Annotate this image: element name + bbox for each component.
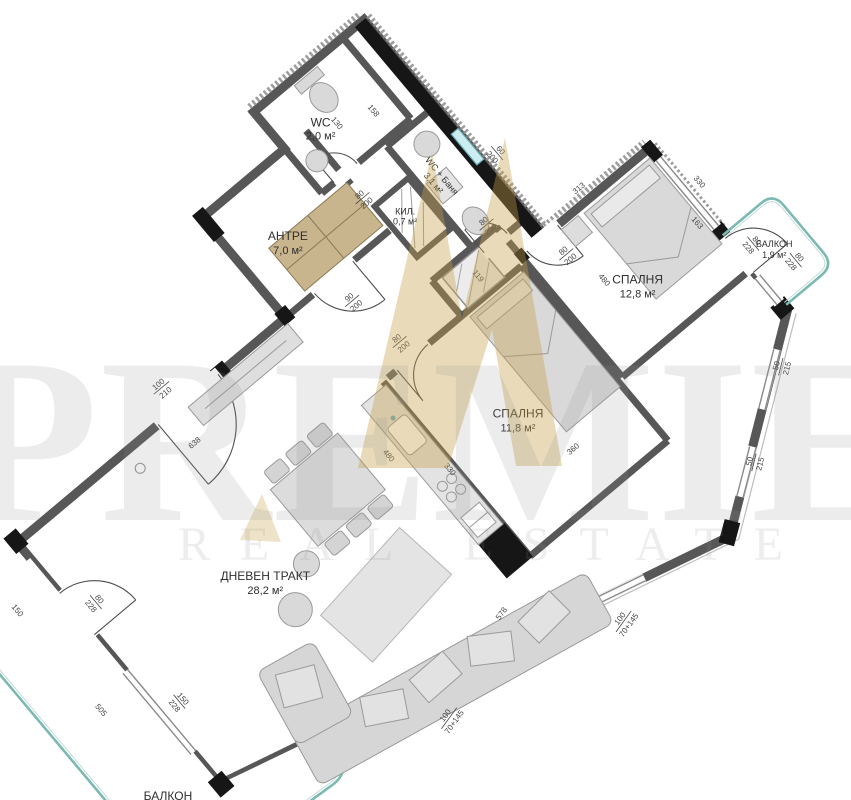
room-label-kil: КИЛ. 0,7 м² xyxy=(393,207,417,227)
watermark-tagline-text: REAL ESTATE xyxy=(178,518,813,571)
svg-text:БАЛКОН: БАЛКОН xyxy=(144,789,193,800)
svg-text:1,9 м²: 1,9 м² xyxy=(762,250,786,260)
room-label-bedroom1: СПАЛНЯ 12,8 м² xyxy=(612,272,663,300)
dim-100-70145-a: 100 70+145 xyxy=(608,605,640,639)
floorplan-svg: WC 2,0 м² КИЛ. 0,7 м² WC + Баня 3,1 м² А… xyxy=(0,0,851,800)
svg-text:28,2 м²: 28,2 м² xyxy=(247,585,283,597)
svg-text:КИЛ.: КИЛ. xyxy=(395,207,415,217)
floorplan-canvas: WC 2,0 м² КИЛ. 0,7 м² WC + Баня 3,1 м² А… xyxy=(0,0,851,800)
watermark: PREMIER REAL ESTATE xyxy=(0,138,851,572)
svg-text:WC: WC xyxy=(311,115,331,129)
svg-text:АНТРЕ: АНТРЕ xyxy=(268,229,308,243)
svg-text:12,8 м²: 12,8 м² xyxy=(620,288,656,300)
dim-330-window: 330 xyxy=(692,174,708,190)
svg-text:СПАЛНЯ: СПАЛНЯ xyxy=(612,272,663,286)
svg-text:7,0 м²: 7,0 м² xyxy=(273,245,303,257)
svg-text:0,7 м²: 0,7 м² xyxy=(393,217,417,227)
svg-text:2,0 м²: 2,0 м² xyxy=(306,130,336,142)
room-label-balcony2: БАЛКОН 6,7 м² xyxy=(144,789,193,800)
